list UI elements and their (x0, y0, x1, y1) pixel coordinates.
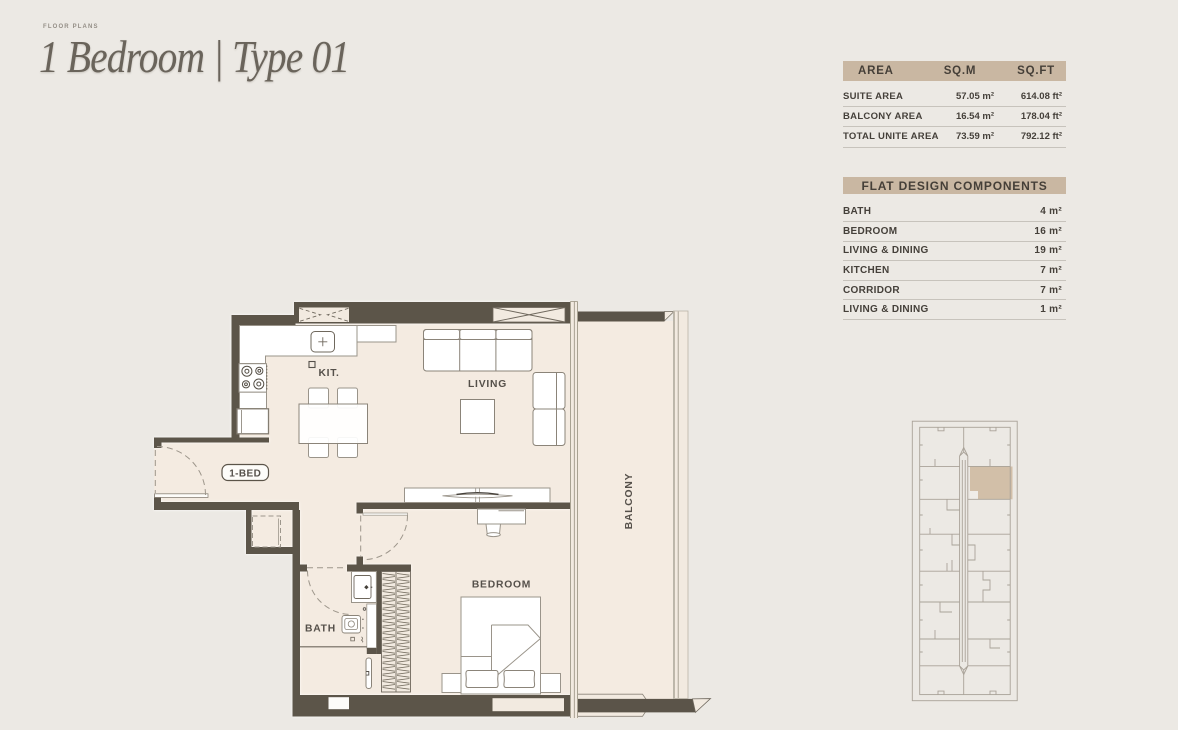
svg-text:BEDROOM: BEDROOM (472, 580, 531, 591)
svg-text:LIVING: LIVING (468, 379, 507, 390)
svg-text:BATH: BATH (305, 624, 336, 635)
svg-text:KIT.: KIT. (319, 368, 340, 379)
svg-text:BALCONY: BALCONY (624, 473, 635, 530)
svg-text:1-BED: 1-BED (229, 469, 261, 480)
